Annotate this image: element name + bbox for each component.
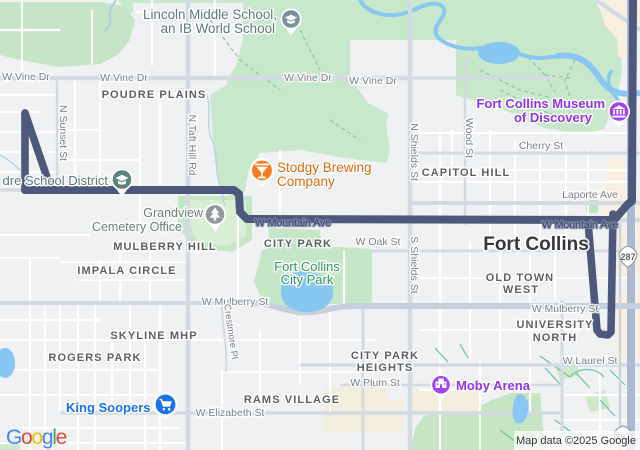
svg-text:W Mulberry St: W Mulberry St [202,296,269,308]
svg-text:Wood St: Wood St [463,118,475,158]
svg-text:Laporte Ave: Laporte Ave [562,189,618,201]
svg-text:W Mountain Ave: W Mountain Ave [542,219,618,231]
svg-text:IMPALA CIRCLE: IMPALA CIRCLE [77,265,176,277]
svg-text:OLD TOWN: OLD TOWN [486,272,554,284]
svg-text:MULBERRY HILL: MULBERRY HILL [113,241,217,253]
svg-text:RAMS VILLAGE: RAMS VILLAGE [244,394,340,406]
svg-text:Stodgy Brewing: Stodgy Brewing [277,160,372,175]
svg-text:N Sunset St: N Sunset St [57,105,69,161]
svg-text:W Vine Dr: W Vine Dr [2,71,50,83]
svg-text:Fort Collins: Fort Collins [483,234,589,255]
svg-text:S Shields St: S Shields St [408,236,420,293]
svg-text:UNIVERSITY: UNIVERSITY [516,319,593,331]
svg-text:W Elizabeth St: W Elizabeth St [196,407,265,419]
svg-text:W Mountain Ave: W Mountain Ave [255,217,331,229]
svg-text:POUDRE PLAINS: POUDRE PLAINS [102,89,207,101]
svg-text:287: 287 [620,252,635,262]
svg-text:CITY PARK: CITY PARK [351,350,419,362]
svg-text:Google: Google [6,426,67,449]
svg-text:dre School District: dre School District [3,173,109,188]
svg-text:W Oak St: W Oak St [356,236,401,248]
svg-text:of Discovery: of Discovery [514,110,593,125]
svg-text:Cemetery Office: Cemetery Office [92,220,182,234]
svg-text:Company: Company [277,174,335,189]
svg-text:Map data ©2025 Google: Map data ©2025 Google [516,435,636,447]
svg-text:N Shields St: N Shields St [408,123,420,181]
svg-text:Cherry St: Cherry St [519,140,563,152]
svg-text:W Vine Dr: W Vine Dr [100,72,148,84]
svg-text:CAPITOL HILL: CAPITOL HILL [422,167,511,179]
svg-text:CITY PARK: CITY PARK [264,238,332,250]
svg-text:an IB World School: an IB World School [161,21,275,36]
svg-text:W Laurel St: W Laurel St [563,355,618,367]
svg-text:HEIGHTS: HEIGHTS [357,362,414,374]
svg-text:W Vine Dr: W Vine Dr [349,75,397,87]
svg-text:W Mulberry St: W Mulberry St [532,303,599,315]
svg-text:W Plum St: W Plum St [350,377,400,389]
svg-text:King Soopers: King Soopers [66,400,151,415]
svg-text:Grandview: Grandview [143,206,204,220]
svg-text:ROGERS PARK: ROGERS PARK [48,352,141,364]
svg-text:SKYLINE MHP: SKYLINE MHP [110,330,197,342]
svg-text:WEST: WEST [503,284,539,296]
svg-text:Fort Collins Museum: Fort Collins Museum [476,96,605,111]
svg-text:W Vine Dr: W Vine Dr [284,72,332,84]
svg-text:NORTH: NORTH [533,332,578,344]
svg-text:N Taft Hill Rd: N Taft Hill Rd [186,114,198,175]
svg-text:Moby Arena: Moby Arena [456,378,531,393]
svg-text:City Park: City Park [281,272,334,287]
svg-text:Lincoln Middle School,: Lincoln Middle School, [143,7,277,22]
